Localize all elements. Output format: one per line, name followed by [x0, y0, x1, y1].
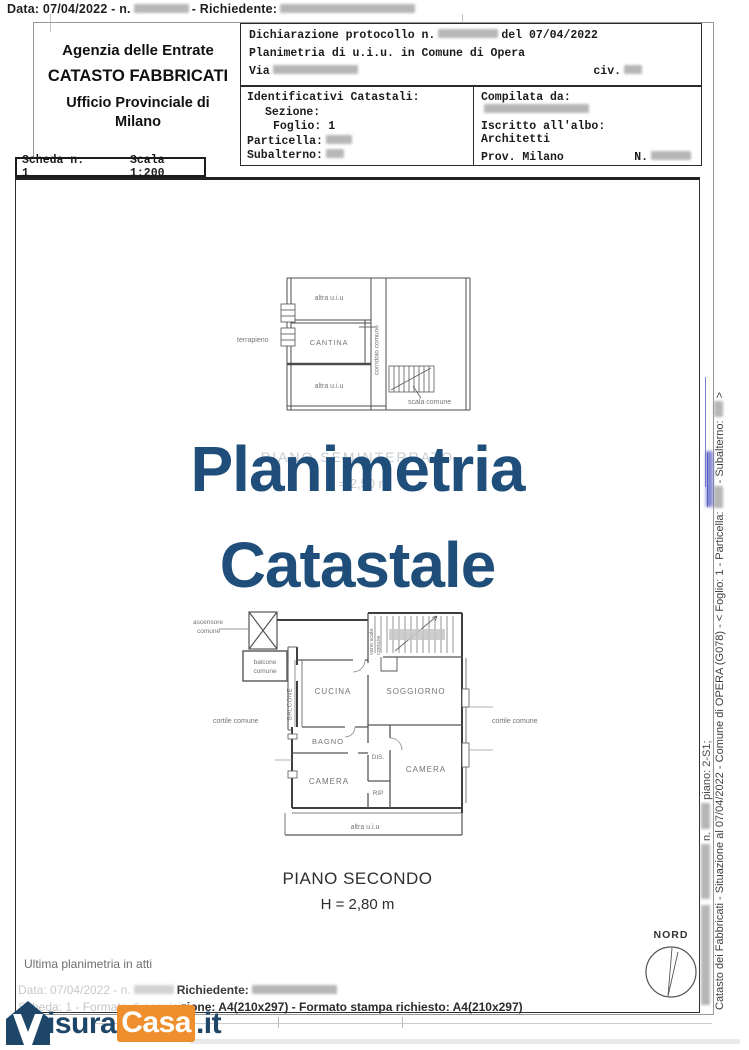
- camera-left-label: CAMERA: [309, 777, 349, 786]
- floor-height: H = 2,80 m: [15, 896, 700, 913]
- door-swings: [345, 660, 402, 750]
- redacted-side-subalterno: [714, 401, 723, 417]
- agency-city: Milano: [36, 114, 240, 130]
- second-floor-plan: ascensore comune balcone comune BALCONE …: [185, 603, 555, 843]
- agency-province-line: Ufficio Provinciale di: [36, 95, 240, 111]
- planimetria-watermark: Planimetria Catastale: [15, 421, 700, 613]
- cortile-comune-left-label: cortile comune: [213, 718, 259, 725]
- side-caption-text: Catasto dei Fabbricati - Situazione al 0…: [714, 511, 726, 1010]
- top-date-bar: Data: 07/04/2022 - n.- Richiedente:: [7, 2, 418, 16]
- cucina-label: CUCINA: [315, 687, 352, 696]
- albo-label: Iscritto all'albo:: [481, 120, 694, 133]
- dis-label: DIS.: [372, 754, 385, 761]
- side-piano-label: piano: 2-S1;: [701, 740, 713, 799]
- redacted-side-address: [701, 844, 710, 899]
- particella-row: Particella:: [247, 135, 467, 150]
- floor-caption: PIANO SECONDO H = 2,80 m: [15, 869, 700, 913]
- side-caption-outer: Catasto dei Fabbricati - Situazione al 0…: [714, 160, 726, 1010]
- blue-annotation-strike: [707, 452, 708, 507]
- redacted-footer-number: [134, 985, 174, 994]
- watermark-line1: Planimetria: [15, 421, 700, 517]
- logo-text-casa: Casa: [117, 1005, 195, 1042]
- basement-floor-plan: altra u.i.u terrapieno CANTINA corridoio…: [225, 270, 475, 418]
- logo-text-it: .it: [196, 1007, 221, 1041]
- albo-value: Architetti: [481, 133, 694, 146]
- side-caption-inner: n.piano: 2-S1;: [701, 158, 713, 1008]
- particella-label: Particella:: [247, 135, 323, 148]
- logo-text-isura: isura: [47, 1007, 116, 1041]
- footer-richiedente-label: Richiedente:: [177, 983, 249, 997]
- declaration-box: Dichiarazione protocollo n.del 07/04/202…: [240, 23, 702, 86]
- declaration-address-row: Via civ.: [249, 65, 693, 78]
- redacted-footer-requester: [252, 985, 337, 994]
- redacted-protocol: [438, 29, 498, 38]
- altra-uiu-label: altra u.i.u: [351, 824, 380, 831]
- redacted-albo-number: [651, 151, 691, 160]
- agency-letterhead: Agenzia delle Entrate CATASTO FABBRICATI…: [36, 30, 240, 130]
- sezione-row: Sezione:: [247, 106, 467, 121]
- balcone-comune-label-1: balcone: [254, 659, 277, 666]
- scale-value: Scala 1:200: [130, 154, 204, 180]
- nord-label: NORD: [645, 929, 697, 941]
- footer-rule-tick: [278, 1017, 279, 1028]
- identifiers-box: Identificativi Catastali: Sezione: Fogli…: [240, 86, 474, 166]
- declaration-protocol-row: Dichiarazione protocollo n.del 07/04/202…: [249, 29, 693, 42]
- civ-label: civ.: [593, 65, 621, 78]
- redacted-subalterno: [326, 149, 344, 158]
- visuracasa-house-icon: [5, 1000, 52, 1047]
- redacted-side-name: [701, 905, 710, 1005]
- scheda-number: Scheda n. 1: [17, 154, 96, 180]
- visuracasa-logo: isura Casa .it: [5, 1000, 221, 1047]
- vano-scala-label-2: comune: [376, 635, 382, 655]
- blue-annotation-text: [700, 437, 718, 507]
- balcone-comune-box: [243, 651, 287, 681]
- elevator-shaft: [249, 612, 277, 649]
- agency-name: Agenzia delle Entrate: [36, 42, 240, 59]
- redacted-side-number: [701, 803, 710, 829]
- cantina-label: CANTINA: [310, 338, 349, 347]
- watermark-line2: Catastale: [15, 517, 700, 613]
- scala-comune-label: scala comune: [408, 399, 451, 406]
- common-stairs: [389, 366, 434, 398]
- redacted-civ: [624, 65, 642, 74]
- subalterno-row: Subalterno:: [247, 149, 467, 164]
- prov-row: Prov. Milano N.: [481, 151, 694, 164]
- compilata-title: Compilata da:: [481, 91, 694, 104]
- agency-office: CATASTO FABBRICATI: [36, 67, 240, 86]
- soggiorno-label: SOGGIORNO: [386, 687, 445, 696]
- top-date-label: Data: 07/04/2022 - n.: [7, 2, 131, 16]
- compass-icon: [645, 945, 697, 999]
- declaration-object-row: Planimetria di u.i.u. in Comune di Opera: [249, 47, 693, 60]
- ascensore-label-1: ascensore: [193, 619, 223, 626]
- albo-number-group: N.: [634, 151, 694, 164]
- protocol-date: del 07/04/2022: [501, 29, 598, 42]
- bagno-label: BAGNO: [312, 737, 344, 746]
- ascensore-label-2: comune: [197, 628, 221, 635]
- rip-label: RIP: [373, 790, 384, 797]
- albo-number-label: N.: [634, 151, 648, 164]
- altra-uiu-bottom-label: altra u.i.u: [315, 383, 344, 390]
- top-richiedente-label: - Richiedente:: [192, 2, 277, 16]
- subalterno-label: Subalterno:: [247, 149, 323, 162]
- footer-rule-tick: [402, 1017, 403, 1028]
- redacted-professional-name: [484, 104, 589, 113]
- extension-lines: [275, 707, 493, 760]
- side-n-label: n.: [701, 832, 713, 841]
- balcone-label: BALCONE: [288, 688, 294, 720]
- redacted-protocol-number: [134, 4, 189, 13]
- via-label: Via: [249, 65, 270, 78]
- floor-name: PIANO SECONDO: [15, 869, 700, 889]
- cadastral-document-page: Data: 07/04/2022 - n.- Richiedente: Agen…: [0, 0, 749, 1050]
- foglio-row: Foglio: 1: [247, 120, 467, 135]
- prov-label: Prov. Milano: [481, 151, 564, 164]
- scheda-scale-box: Scheda n. 1 Scala 1:200: [15, 157, 206, 177]
- redacted-stairwell-text: [389, 629, 445, 640]
- cortile-comune-right-label: cortile comune: [492, 718, 538, 725]
- redacted-street: [273, 65, 358, 74]
- redacted-requester: [280, 4, 415, 13]
- camera-right-label: CAMERA: [406, 765, 446, 774]
- corridoio-comune-label: corridoio comune: [374, 325, 381, 375]
- footer-format-values: zione: A4(210x297) - Formato stampa rich…: [181, 1000, 523, 1014]
- civ-group: civ.: [593, 65, 645, 78]
- redacted-particella: [326, 135, 352, 144]
- protocol-label: Dichiarazione protocollo n.: [249, 29, 435, 42]
- vano-scala-label-1: vano scala: [369, 628, 375, 655]
- side-caption-close: >: [714, 392, 726, 398]
- footer-date-faint: Data: 07/04/2022 - n.: [18, 983, 131, 997]
- altra-uiu-top-label: altra u.i.u: [315, 295, 344, 302]
- compilata-name-row: [481, 104, 694, 117]
- balcone-comune-label-2: comune: [253, 668, 277, 675]
- scan-edge-streak: [190, 1039, 740, 1044]
- identifiers-title: Identificativi Catastali:: [247, 91, 467, 106]
- footer-requester-line: Data: 07/04/2022 - n.Richiedente:: [18, 983, 340, 997]
- terrapieno-label: terrapieno: [237, 337, 269, 344]
- basement-window-marks: [281, 304, 295, 346]
- compiled-by-box: Compilata da: Iscritto all'albo: Archite…: [473, 86, 702, 166]
- ultima-planimetria-note: Ultima planimetria in atti: [24, 957, 152, 971]
